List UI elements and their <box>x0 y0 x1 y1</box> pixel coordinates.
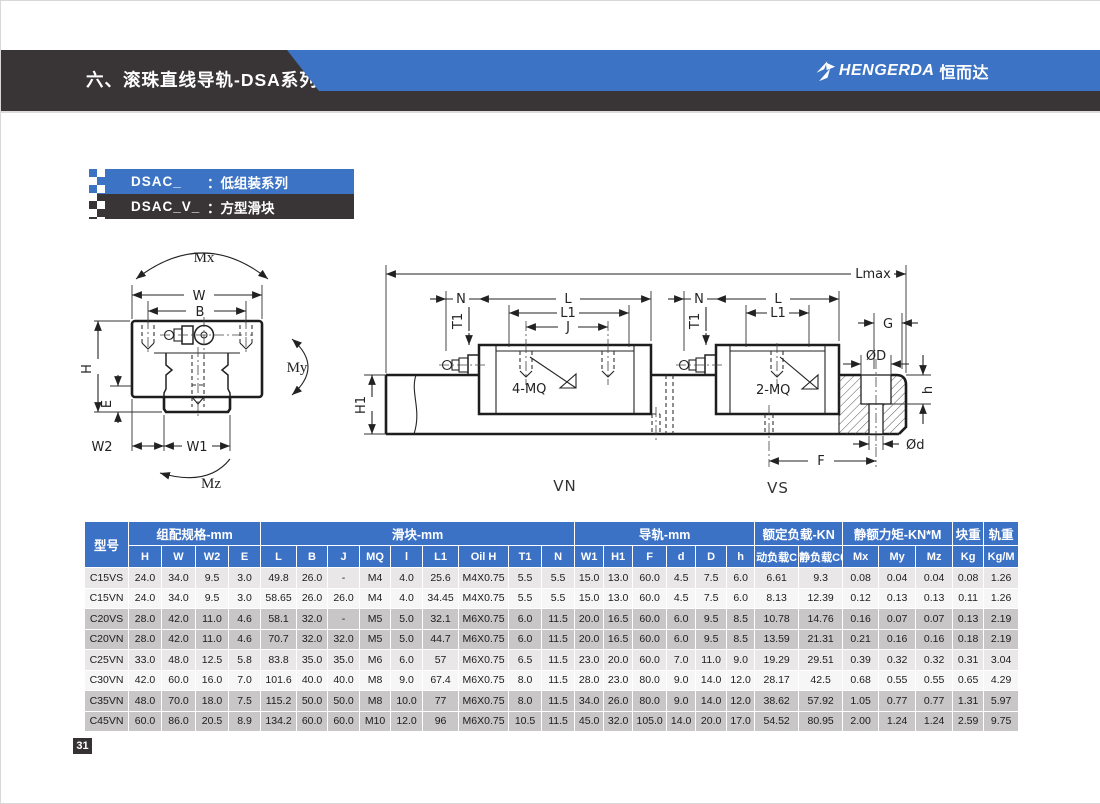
value-cell: 2.19 <box>984 629 1019 650</box>
spec-table: 型号 组配规格-mm 滑块-mm 导轨-mm 额定负载-KN 静额力矩-KN*M… <box>84 521 1019 732</box>
value-cell: 48.0 <box>162 650 196 671</box>
value-cell: 20.0 <box>604 650 633 671</box>
value-cell: - <box>328 568 360 589</box>
value-cell: 8.5 <box>727 629 755 650</box>
value-cell: 3.0 <box>229 568 261 589</box>
col-group-block: 滑块-mm <box>261 522 575 546</box>
dim-label-phiD: ØD <box>866 349 886 364</box>
value-cell: 7.0 <box>229 670 261 691</box>
value-cell: 9.5 <box>696 629 727 650</box>
value-cell: 5.97 <box>984 691 1019 712</box>
value-cell: 0.16 <box>879 629 916 650</box>
value-cell: 1.24 <box>916 711 953 732</box>
value-cell: 14.0 <box>696 670 727 691</box>
value-cell: 26.0 <box>328 588 360 609</box>
value-cell: 9.0 <box>727 650 755 671</box>
col-subheader: H1 <box>604 546 633 568</box>
value-cell: 4.6 <box>229 609 261 630</box>
value-cell: 101.6 <box>261 670 297 691</box>
dim-label-g: G <box>883 317 893 332</box>
value-cell: 11.0 <box>696 650 727 671</box>
series-row-square-block: DSAC_V_ ：方型滑块 <box>89 194 354 219</box>
col-header-model: 型号 <box>85 522 129 568</box>
value-cell: 12.0 <box>391 711 423 732</box>
value-cell: 80.0 <box>633 670 667 691</box>
series-code: DSAC_V_ <box>131 199 207 214</box>
checker-decoration <box>89 169 105 219</box>
value-cell: 23.0 <box>604 670 633 691</box>
value-cell: 12.5 <box>196 650 229 671</box>
value-cell: 9.75 <box>984 711 1019 732</box>
series-row-low-assembly: DSAC_ ：低组装系列 <box>89 169 354 194</box>
value-cell: 9.5 <box>196 568 229 589</box>
value-cell: 4.29 <box>984 670 1019 691</box>
rail-bottom-outline <box>164 397 230 412</box>
value-cell: 34.0 <box>162 588 196 609</box>
dim-label-2mq: 2-MQ <box>756 383 790 398</box>
col-subheader: d <box>667 546 696 568</box>
col-subheader: T1 <box>509 546 542 568</box>
block-bolt-holes <box>142 319 252 355</box>
value-cell: 0.08 <box>843 568 879 589</box>
value-cell: M10 <box>360 711 391 732</box>
value-cell: 8.5 <box>727 609 755 630</box>
value-cell: M5 <box>360 609 391 630</box>
col-subheader: H <box>129 546 162 568</box>
value-cell: M4 <box>360 588 391 609</box>
dim-label-l1-right: L1 <box>770 306 786 321</box>
header-band: 六、滚珠直线导轨-DSA系列 HENGERDA恒而达 <box>1 50 1100 111</box>
value-cell: 15.0 <box>575 588 604 609</box>
grease-nipple-left <box>439 355 486 375</box>
value-cell: 8.0 <box>509 691 542 712</box>
value-cell: 20.5 <box>196 711 229 732</box>
col-group-rail-weight: 轨重 <box>984 522 1019 546</box>
value-cell: 9.0 <box>667 691 696 712</box>
dim-label-h1: H1 <box>354 396 369 414</box>
value-cell: 18.0 <box>196 691 229 712</box>
value-cell: 1.31 <box>953 691 984 712</box>
value-cell: M6X0.75 <box>459 691 509 712</box>
col-subheader: h <box>727 546 755 568</box>
col-subheader: L <box>261 546 297 568</box>
page-title: 六、滚珠直线导轨-DSA系列 <box>86 50 318 111</box>
value-cell: 26.0 <box>297 568 328 589</box>
col-subheader: N <box>542 546 575 568</box>
value-cell: 33.0 <box>129 650 162 671</box>
value-cell: 16.5 <box>604 629 633 650</box>
value-cell: 70.7 <box>261 629 297 650</box>
value-cell: M6X0.75 <box>459 609 509 630</box>
table-row: C45VN60.086.020.58.9134.260.060.0M1012.0… <box>85 711 1019 732</box>
dim-label-l1-left: L1 <box>560 306 576 321</box>
col-subheader: My <box>879 546 916 568</box>
value-cell: 9.5 <box>696 609 727 630</box>
value-cell: 13.59 <box>755 629 799 650</box>
dim-label-t1-left: T1 <box>451 313 466 330</box>
value-cell: M6 <box>360 650 391 671</box>
value-cell: 0.68 <box>843 670 879 691</box>
value-cell: 0.31 <box>953 650 984 671</box>
value-cell: 24.0 <box>129 568 162 589</box>
col-group-rail: 导轨-mm <box>575 522 755 546</box>
value-cell: 42.0 <box>129 670 162 691</box>
value-cell: 34.0 <box>162 568 196 589</box>
table-row: C20VN28.042.011.04.670.732.032.0M55.044.… <box>85 629 1019 650</box>
dim-label-e: E <box>100 400 115 408</box>
dim-label-j: J <box>565 320 570 335</box>
value-cell: 9.3 <box>799 568 843 589</box>
model-cell: C35VN <box>85 691 129 712</box>
value-cell: 0.07 <box>879 609 916 630</box>
value-cell: 6.0 <box>509 629 542 650</box>
value-cell: M8 <box>360 670 391 691</box>
series-labels: DSAC_ ：低组装系列 DSAC_V_ ：方型滑块 <box>89 169 354 219</box>
value-cell: 20.0 <box>575 629 604 650</box>
value-cell: 35.0 <box>297 650 328 671</box>
value-cell: 50.0 <box>328 691 360 712</box>
value-cell: 14.0 <box>667 711 696 732</box>
value-cell: M4X0.75 <box>459 568 509 589</box>
value-cell: 1.24 <box>879 711 916 732</box>
value-cell: 24.0 <box>129 588 162 609</box>
value-cell: 42.0 <box>162 629 196 650</box>
value-cell: 0.65 <box>953 670 984 691</box>
value-cell: 4.0 <box>391 568 423 589</box>
value-cell: 17.0 <box>727 711 755 732</box>
brand-z-icon <box>814 60 836 82</box>
table-row: C15VN24.034.09.53.058.6526.026.0M44.034.… <box>85 588 1019 609</box>
value-cell: 1.26 <box>984 588 1019 609</box>
view-label-vs: VS <box>767 479 789 497</box>
table-row: C15VS24.034.09.53.049.826.0-M44.025.6M4X… <box>85 568 1019 589</box>
value-cell: 32.1 <box>423 609 459 630</box>
value-cell: 60.0 <box>633 629 667 650</box>
header-accent-ribbon: HENGERDA恒而达 <box>287 50 1100 91</box>
value-cell: 50.0 <box>297 691 328 712</box>
value-cell: 28.17 <box>755 670 799 691</box>
value-cell: 80.0 <box>633 691 667 712</box>
model-cell: C45VN <box>85 711 129 732</box>
value-cell: 4.6 <box>229 629 261 650</box>
value-cell: 28.0 <box>575 670 604 691</box>
model-cell: C15VS <box>85 568 129 589</box>
rail-section <box>839 359 906 447</box>
col-subheader: 静负载C0 <box>799 546 843 568</box>
series-desc: ：方型滑块 <box>207 197 275 217</box>
value-cell: M5 <box>360 629 391 650</box>
value-cell: 28.0 <box>129 629 162 650</box>
value-cell: 58.1 <box>261 609 297 630</box>
value-cell: M8 <box>360 691 391 712</box>
dim-label-my: My <box>287 360 308 376</box>
value-cell: 57 <box>423 650 459 671</box>
value-cell: 23.0 <box>575 650 604 671</box>
value-cell: 42.5 <box>799 670 843 691</box>
value-cell: 5.5 <box>509 588 542 609</box>
model-cell: C20VN <box>85 629 129 650</box>
dim-label-mx: Mx <box>194 250 215 266</box>
value-cell: 6.0 <box>667 629 696 650</box>
value-cell: 40.0 <box>328 670 360 691</box>
dim-label-w1: W1 <box>186 440 207 455</box>
value-cell: 77 <box>423 691 459 712</box>
value-cell: 11.5 <box>542 629 575 650</box>
carriage-vs: 2-MQ <box>676 343 839 414</box>
value-cell: 19.29 <box>755 650 799 671</box>
value-cell: 32.0 <box>297 629 328 650</box>
model-cell: C20VS <box>85 609 129 630</box>
value-cell: M4 <box>360 568 391 589</box>
value-cell: 20.0 <box>575 609 604 630</box>
value-cell: 12.0 <box>727 691 755 712</box>
dim-label-mz: Mz <box>201 476 221 492</box>
value-cell: 0.04 <box>916 568 953 589</box>
value-cell: 0.16 <box>916 629 953 650</box>
value-cell: 4.5 <box>667 568 696 589</box>
col-subheader: E <box>229 546 261 568</box>
value-cell: 12.0 <box>727 670 755 691</box>
value-cell: 60.0 <box>633 609 667 630</box>
value-cell: 13.0 <box>604 588 633 609</box>
carriage-block-outline <box>132 321 262 397</box>
table-row: C20VS28.042.011.04.658.132.0-M55.032.1M6… <box>85 609 1019 630</box>
value-cell: 34.45 <box>423 588 459 609</box>
value-cell: M6X0.75 <box>459 629 509 650</box>
side-view-diagram: Lmax H1 4-MQ <box>346 247 1051 507</box>
value-cell: 6.5 <box>509 650 542 671</box>
col-subheader: Mz <box>916 546 953 568</box>
value-cell: 0.18 <box>953 629 984 650</box>
brand-latin: HENGERDA <box>839 62 935 80</box>
view-label-vn: VN <box>553 477 576 495</box>
value-cell: 6.61 <box>755 568 799 589</box>
value-cell: 0.08 <box>953 568 984 589</box>
value-cell: 25.6 <box>423 568 459 589</box>
value-cell: 21.31 <box>799 629 843 650</box>
col-subheader: Kg <box>953 546 984 568</box>
value-cell: 32.0 <box>297 609 328 630</box>
value-cell: 5.5 <box>542 588 575 609</box>
brand-logo: HENGERDA恒而达 <box>814 59 989 83</box>
dim-label-h-small: h <box>921 386 936 394</box>
col-subheader: MQ <box>360 546 391 568</box>
value-cell: 7.5 <box>696 588 727 609</box>
model-cell: C15VN <box>85 588 129 609</box>
model-cell: C30VN <box>85 670 129 691</box>
value-cell: 10.5 <box>509 711 542 732</box>
dim-label-4mq: 4-MQ <box>512 382 546 397</box>
value-cell: 10.78 <box>755 609 799 630</box>
value-cell: 0.32 <box>916 650 953 671</box>
value-cell: 3.04 <box>984 650 1019 671</box>
value-cell: 32.0 <box>328 629 360 650</box>
value-cell: 15.0 <box>575 568 604 589</box>
col-subheader: Mx <box>843 546 879 568</box>
grease-nipple <box>160 317 252 357</box>
cross-section-diagram: Mx W B <box>56 239 356 504</box>
value-cell: 9.0 <box>391 670 423 691</box>
value-cell: 58.65 <box>261 588 297 609</box>
value-cell: 6.0 <box>391 650 423 671</box>
value-cell: 35.0 <box>328 650 360 671</box>
value-cell: 4.5 <box>667 588 696 609</box>
value-cell: 0.13 <box>879 588 916 609</box>
col-subheader: Kg/M <box>984 546 1019 568</box>
value-cell: M6X0.75 <box>459 711 509 732</box>
value-cell: 60.0 <box>162 670 196 691</box>
value-cell: 57.92 <box>799 691 843 712</box>
col-group-load: 额定负载-KN <box>755 522 843 546</box>
value-cell: 2.59 <box>953 711 984 732</box>
col-group-assembly: 组配规格-mm <box>129 522 261 546</box>
value-cell: 34.0 <box>575 691 604 712</box>
value-cell: 42.0 <box>162 609 196 630</box>
value-cell: 0.13 <box>916 588 953 609</box>
value-cell: 115.2 <box>261 691 297 712</box>
value-cell: 5.8 <box>229 650 261 671</box>
value-cell: 16.5 <box>604 609 633 630</box>
col-subheader: W <box>162 546 196 568</box>
dim-label-b: B <box>196 305 205 320</box>
value-cell: 60.0 <box>633 588 667 609</box>
dim-label-phid: Ød <box>906 438 924 453</box>
page-number-badge: 31 <box>73 738 92 754</box>
value-cell: 3.0 <box>229 588 261 609</box>
value-cell: 5.5 <box>509 568 542 589</box>
value-cell: 0.12 <box>843 588 879 609</box>
value-cell: 0.04 <box>879 568 916 589</box>
value-cell: 40.0 <box>297 670 328 691</box>
value-cell: 0.77 <box>879 691 916 712</box>
value-cell: 38.62 <box>755 691 799 712</box>
value-cell: 6.0 <box>509 609 542 630</box>
value-cell: 11.5 <box>542 670 575 691</box>
value-cell: 20.0 <box>696 711 727 732</box>
col-group-block-weight: 块重 <box>953 522 984 546</box>
value-cell: 0.55 <box>879 670 916 691</box>
value-cell: 54.52 <box>755 711 799 732</box>
dim-label-w2: W2 <box>91 440 112 455</box>
value-cell: 8.0 <box>509 670 542 691</box>
col-subheader: J <box>328 546 360 568</box>
series-code: DSAC_ <box>131 174 207 189</box>
value-cell: 67.4 <box>423 670 459 691</box>
value-cell: 11.0 <box>196 609 229 630</box>
dim-label-l-right: L <box>774 292 782 307</box>
value-cell: 83.8 <box>261 650 297 671</box>
value-cell: 105.0 <box>633 711 667 732</box>
value-cell: 0.07 <box>916 609 953 630</box>
col-subheader: W2 <box>196 546 229 568</box>
value-cell: 86.0 <box>162 711 196 732</box>
value-cell: 5.0 <box>391 629 423 650</box>
value-cell: 26.0 <box>297 588 328 609</box>
value-cell: 0.39 <box>843 650 879 671</box>
table-row: C30VN42.060.016.07.0101.640.040.0M89.067… <box>85 670 1019 691</box>
spec-table-body: C15VS24.034.09.53.049.826.0-M44.025.6M4X… <box>85 568 1019 732</box>
value-cell: 0.32 <box>879 650 916 671</box>
value-cell: 60.0 <box>297 711 328 732</box>
value-cell: 80.95 <box>799 711 843 732</box>
brand-cn: 恒而达 <box>939 59 989 83</box>
col-subheader: W1 <box>575 546 604 568</box>
value-cell: 11.0 <box>196 629 229 650</box>
value-cell: 9.5 <box>196 588 229 609</box>
value-cell: 14.0 <box>696 691 727 712</box>
value-cell: 1.05 <box>843 691 879 712</box>
col-subheader: Oil H <box>459 546 509 568</box>
value-cell: 0.11 <box>953 588 984 609</box>
catalog-page: 六、滚珠直线导轨-DSA系列 HENGERDA恒而达 DSAC_ ：低组装系列 … <box>0 0 1100 804</box>
grease-nipple-right <box>676 355 723 375</box>
value-cell: 60.0 <box>633 568 667 589</box>
value-cell: 60.0 <box>129 711 162 732</box>
col-subheader: B <box>297 546 328 568</box>
value-cell: 26.0 <box>604 691 633 712</box>
value-cell: 7.5 <box>229 691 261 712</box>
value-cell: 16.0 <box>196 670 229 691</box>
value-cell: 2.19 <box>984 609 1019 630</box>
value-cell: 49.8 <box>261 568 297 589</box>
dim-label-l-left: L <box>564 292 572 307</box>
dim-label-lmax: Lmax <box>855 267 891 282</box>
value-cell: 6.0 <box>727 568 755 589</box>
value-cell: 8.13 <box>755 588 799 609</box>
table-group-row: 型号 组配规格-mm 滑块-mm 导轨-mm 额定负载-KN 静额力矩-KN*M… <box>85 522 1019 546</box>
value-cell: 0.77 <box>916 691 953 712</box>
dim-label-n-left: N <box>456 292 466 307</box>
dim-label-n-right: N <box>694 292 704 307</box>
col-subheader: L1 <box>423 546 459 568</box>
value-cell: 0.55 <box>916 670 953 691</box>
value-cell: 28.0 <box>129 609 162 630</box>
value-cell: 6.0 <box>727 588 755 609</box>
value-cell: 12.39 <box>799 588 843 609</box>
col-subheader: 动负载C <box>755 546 799 568</box>
value-cell: 13.0 <box>604 568 633 589</box>
dim-label-t1-right: T1 <box>688 313 703 330</box>
value-cell: 14.76 <box>799 609 843 630</box>
value-cell: 29.51 <box>799 650 843 671</box>
value-cell: 7.5 <box>696 568 727 589</box>
value-cell: 45.0 <box>575 711 604 732</box>
value-cell: 0.13 <box>953 609 984 630</box>
dim-label-h: H <box>80 364 95 374</box>
value-cell: 11.5 <box>542 691 575 712</box>
value-cell: 7.0 <box>667 650 696 671</box>
value-cell: 60.0 <box>633 650 667 671</box>
value-cell: 32.0 <box>604 711 633 732</box>
value-cell: 11.5 <box>542 711 575 732</box>
value-cell: 44.7 <box>423 629 459 650</box>
model-cell: C25VN <box>85 650 129 671</box>
value-cell: 0.21 <box>843 629 879 650</box>
value-cell: 11.5 <box>542 650 575 671</box>
value-cell: 11.5 <box>542 609 575 630</box>
value-cell: 6.0 <box>667 609 696 630</box>
value-cell: 48.0 <box>129 691 162 712</box>
col-subheader: D <box>696 546 727 568</box>
value-cell: 5.5 <box>542 568 575 589</box>
value-cell: 2.00 <box>843 711 879 732</box>
value-cell: - <box>328 609 360 630</box>
value-cell: 8.9 <box>229 711 261 732</box>
value-cell: M4X0.75 <box>459 588 509 609</box>
col-subheader: F <box>633 546 667 568</box>
dim-label-f: F <box>817 454 824 469</box>
value-cell: 134.2 <box>261 711 297 732</box>
